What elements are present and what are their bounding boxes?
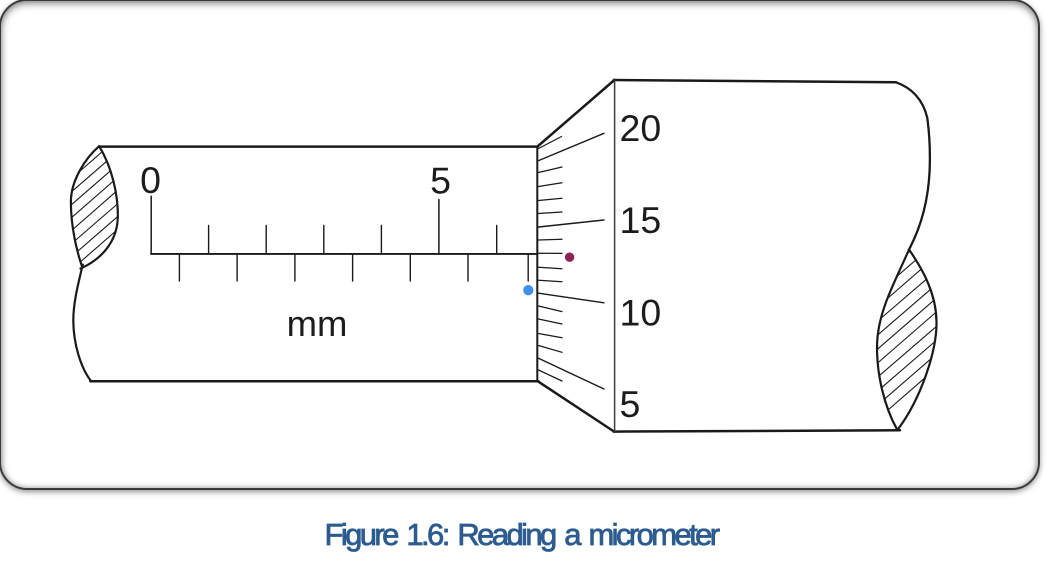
svg-text:mm: mm: [287, 303, 348, 344]
svg-text:5: 5: [430, 159, 451, 201]
svg-text:10: 10: [620, 291, 662, 333]
svg-text:20: 20: [620, 107, 662, 149]
svg-text:0: 0: [140, 159, 161, 201]
svg-text:15: 15: [620, 199, 662, 241]
svg-text:5: 5: [620, 383, 641, 425]
